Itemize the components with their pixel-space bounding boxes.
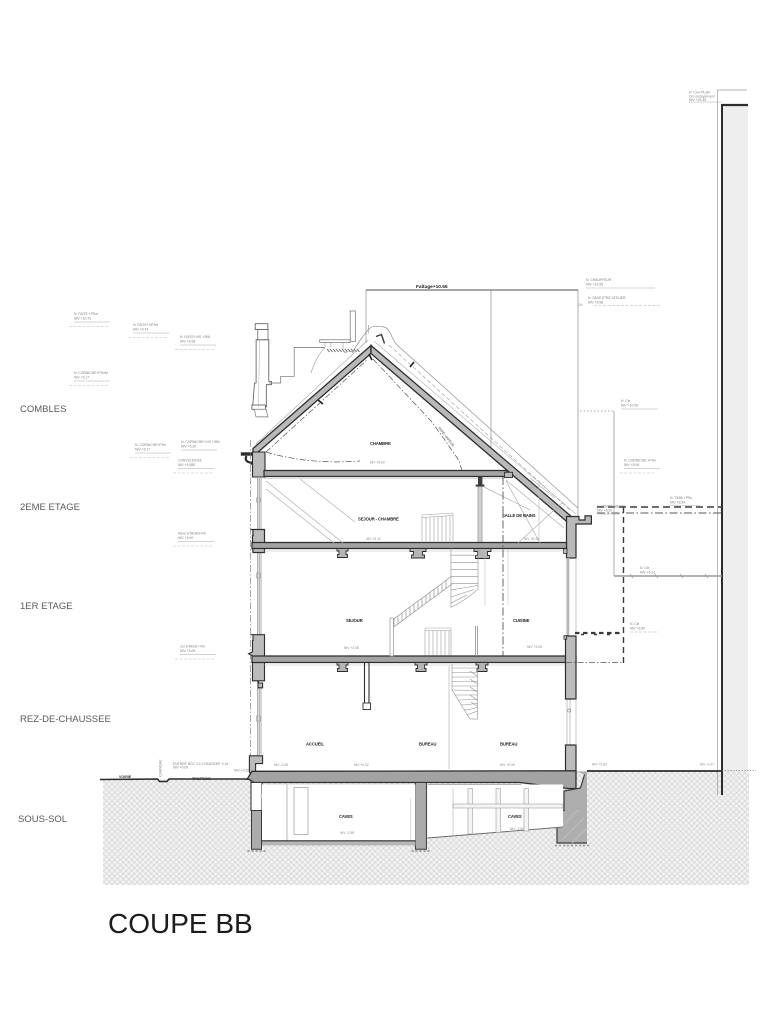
- svg-text:NIV +0.63: NIV +0.63: [592, 763, 607, 767]
- svg-text:COMBLES: COMBLES: [20, 404, 66, 415]
- svg-text:COUPE BB: COUPE BB: [108, 908, 253, 939]
- svg-text:NIV +9.58: NIV +9.58: [588, 301, 603, 305]
- svg-text:N. FAITE+VIS +35A: N. FAITE+VIS +35A: [180, 335, 211, 339]
- svg-text:N. Cie: N. Cie: [630, 622, 640, 626]
- svg-text:NIV +5.20: NIV +5.20: [181, 445, 196, 449]
- svg-text:BUREAU: BUREAU: [419, 742, 436, 747]
- svg-text:NIV +6.12: NIV +6.12: [524, 537, 539, 541]
- svg-text:SEJOUR: SEJOUR: [346, 618, 363, 623]
- svg-text:N. SILVESTRE ATELIER: N. SILVESTRE ATELIER: [588, 296, 626, 300]
- svg-text:NIV +4.985: NIV +4.985: [178, 463, 195, 467]
- svg-text:SOUS-SOL: SOUS-SOL: [18, 814, 67, 825]
- svg-text:NIV +6.12: NIV +6.12: [640, 571, 655, 575]
- svg-text:NIV +10.95: NIV +10.95: [621, 404, 638, 408]
- svg-text:NIV -2.52: NIV -2.52: [510, 827, 524, 831]
- svg-text:1er ETAGE +VN: 1er ETAGE +VN: [180, 645, 205, 649]
- svg-text:N. CHAUFFEUR: N. CHAUFFEUR: [586, 278, 612, 282]
- svg-text:Faîtage+10.65: Faîtage+10.65: [416, 284, 448, 290]
- svg-text:NIV +5.17: NIV +5.17: [135, 448, 150, 452]
- svg-text:CHNVSLEVnNl: CHNVSLEVnNl: [178, 459, 202, 463]
- svg-text:N. Cie: N. Cie: [640, 566, 650, 570]
- svg-text:NIV +0.02: NIV +0.02: [354, 763, 369, 767]
- svg-text:NIV +4.00: NIV +4.00: [178, 536, 193, 540]
- svg-text:NIV -0.07: NIV -0.07: [700, 763, 714, 767]
- svg-text:H. Cie: H. Cie: [621, 399, 631, 403]
- svg-text:NIV +23.35: NIV +23.35: [689, 98, 706, 102]
- svg-text:CAVES: CAVES: [339, 814, 353, 819]
- svg-text:N. CORNICHE +PSn: N. CORNICHE +PSn: [624, 459, 656, 463]
- svg-text:Ch: Ch: [578, 303, 582, 307]
- svg-text:NIV +8.20: NIV +8.20: [597, 509, 612, 513]
- svg-text:VOIRIE: VOIRIE: [119, 775, 132, 779]
- svg-text:NIV +0.15: NIV +0.15: [234, 769, 249, 773]
- svg-text:CHAMBRE: CHAMBRE: [370, 441, 391, 446]
- svg-text:NIV +9.74: NIV +9.74: [133, 328, 148, 332]
- svg-text:BUREAU: BUREAU: [500, 742, 517, 747]
- svg-text:NIV +8.54: NIV +8.54: [670, 501, 685, 505]
- svg-text:N. CORNICHE+PSnM: N. CORNICHE+PSnM: [74, 371, 108, 375]
- svg-text:NIV +9.08: NIV +9.08: [180, 340, 195, 344]
- svg-text:ACCUEIL: ACCUEIL: [306, 742, 324, 747]
- svg-text:2EME ETAGE: 2EME ETAGE: [20, 502, 80, 513]
- svg-text:SALLE DE BAINS: SALLE DE BAINS: [502, 513, 536, 518]
- svg-text:NIV +10.73: NIV +10.73: [74, 317, 91, 321]
- svg-text:N. CORNICHE+PSn: N. CORNICHE+PSn: [135, 443, 166, 447]
- svg-text:N. 75/85 +PSn: N. 75/85 +PSn: [670, 496, 692, 500]
- svg-text:N. FAITE+VPSnl: N. FAITE+VPSnl: [133, 323, 158, 327]
- svg-text:NIV +5.17: NIV +5.17: [74, 376, 89, 380]
- svg-text:NIV +10.95: NIV +10.95: [586, 283, 603, 287]
- svg-text:NIV +8.00: NIV +8.00: [370, 461, 385, 465]
- svg-text:NIV -0.08: NIV -0.08: [274, 763, 288, 767]
- svg-text:NIV +9.06: NIV +9.06: [624, 463, 639, 467]
- svg-text:N. CORNICHE+VIS +35A: N. CORNICHE+VIS +35A: [181, 440, 221, 444]
- svg-text:N. FAITE +PSnl: N. FAITE +PSnl: [74, 312, 98, 316]
- svg-text:NIV +3.05: NIV +3.05: [180, 649, 195, 653]
- svg-text:PARE-VAPEUR: PARE-VAPEUR: [437, 426, 455, 448]
- svg-text:TROTTOIR: TROTTOIR: [192, 777, 211, 781]
- svg-text:CANIVEAU: CANIVEAU: [159, 759, 163, 777]
- svg-text:NIV +0.05: NIV +0.05: [500, 763, 515, 767]
- svg-text:REZ-DE-CHAUSSEE: REZ-DE-CHAUSSEE: [20, 714, 111, 725]
- svg-text:NIV +0.00: NIV +0.00: [173, 766, 188, 770]
- svg-text:Neve ETAGES+Nl: Neve ETAGES+Nl: [178, 532, 206, 536]
- svg-text:NIV -2.55: NIV -2.55: [340, 831, 354, 835]
- svg-text:NIV +3.05: NIV +3.05: [527, 645, 542, 649]
- svg-text:NIV +6.12: NIV +6.12: [366, 537, 381, 541]
- svg-text:CAVES: CAVES: [508, 814, 522, 819]
- svg-text:NIV +3.05: NIV +3.05: [344, 646, 359, 650]
- svg-text:1ER ETAGE: 1ER ETAGE: [20, 601, 73, 612]
- svg-text:NIV +6.50: NIV +6.50: [630, 627, 645, 631]
- svg-text:CUISINE: CUISINE: [513, 618, 530, 623]
- svg-text:SEJOUR - CHAMBRE: SEJOUR - CHAMBRE: [358, 517, 399, 522]
